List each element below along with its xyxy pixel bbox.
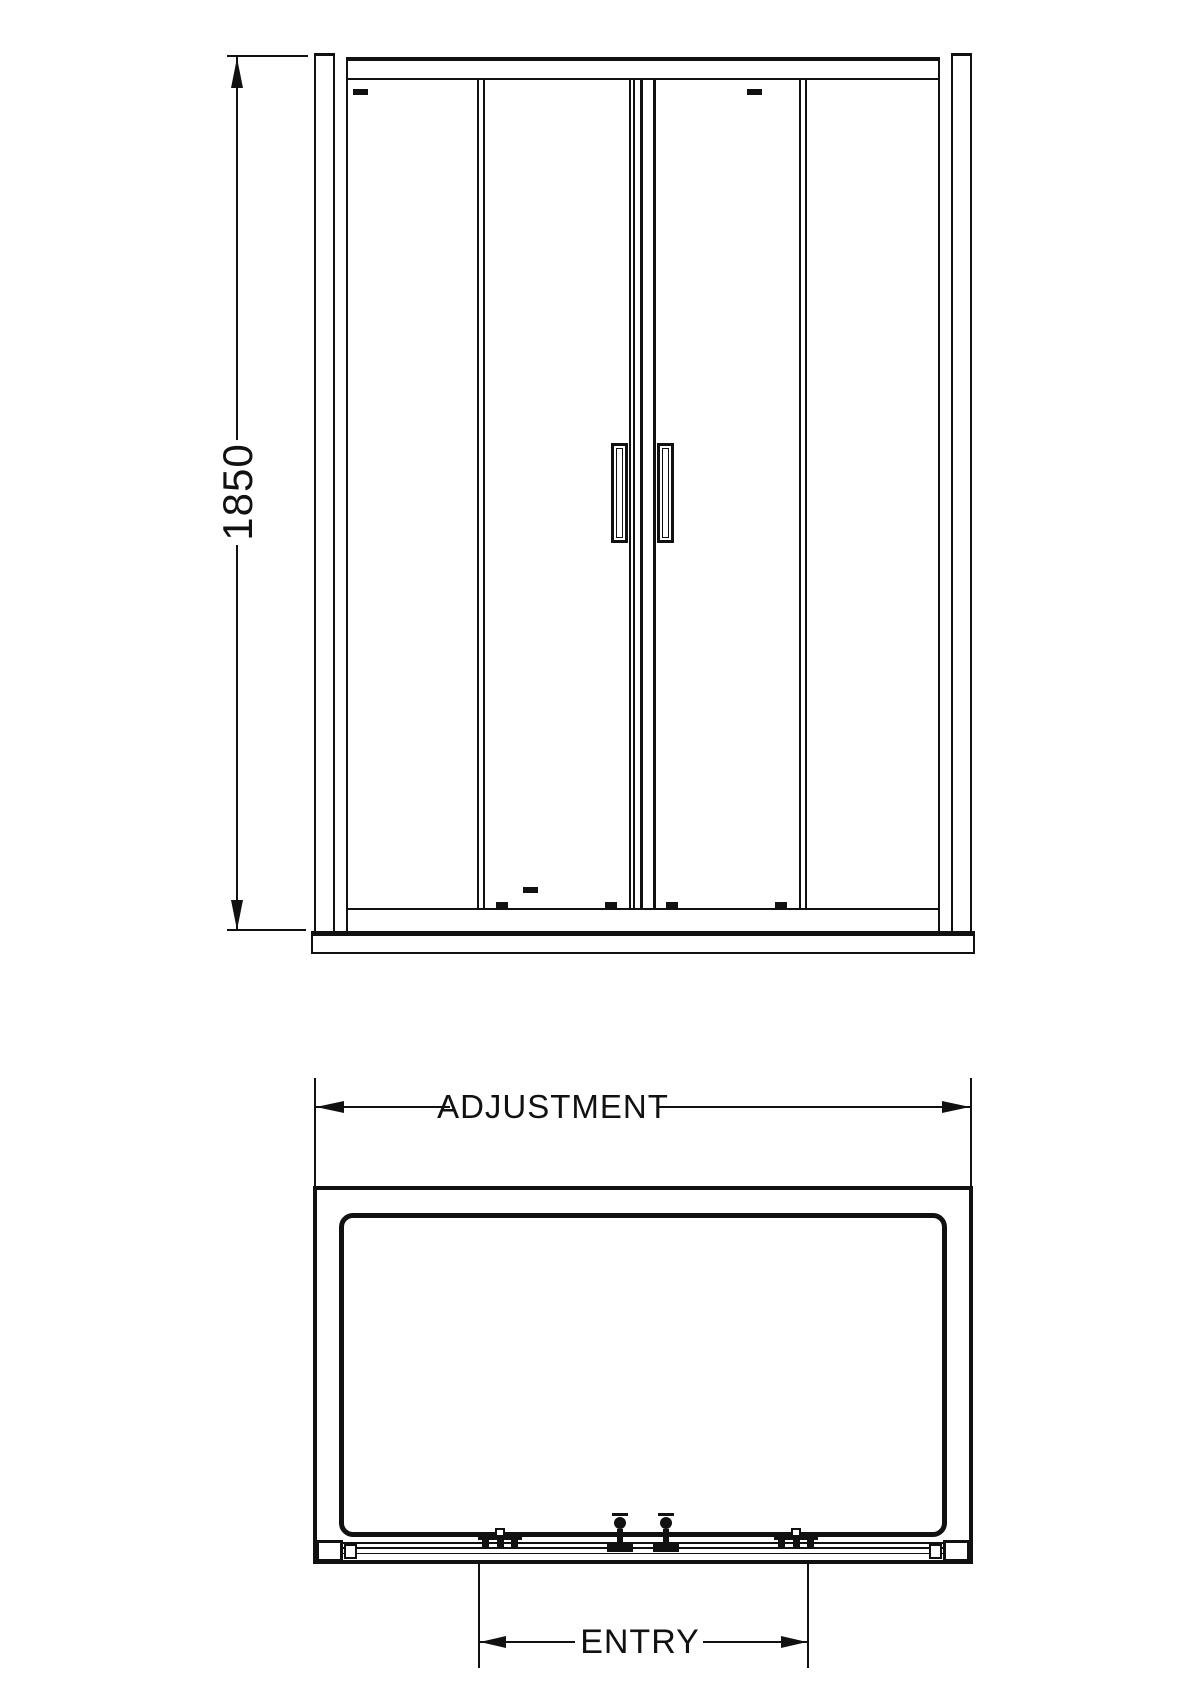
entry-ext-line-right: [807, 1560, 809, 1668]
adjustment-arrow-left: [316, 1101, 344, 1113]
track-line-3: [322, 1553, 964, 1554]
right-roller-tooth-3: [807, 1540, 814, 1549]
adjustment-ext-line-right: [970, 1078, 972, 1186]
right-guide-knob: [660, 1517, 672, 1529]
adjustment-dim-line-right: [657, 1106, 970, 1108]
right-roller-tooth-1: [778, 1540, 785, 1549]
left-guide-base: [607, 1544, 633, 1552]
adjustment-arrow-right: [942, 1101, 970, 1113]
track-line-1: [322, 1542, 964, 1544]
track-end-block-left: [316, 1540, 343, 1562]
track-end-cap-right: [929, 1544, 942, 1559]
adjustment-dim-label: ADJUSTMENT: [403, 1084, 703, 1130]
plan-inner-tray-edge: [339, 1213, 947, 1537]
drawing-sheet: 1850: [0, 0, 1200, 1698]
left-guide-knob: [614, 1517, 626, 1529]
left-roller-tooth-3: [511, 1540, 518, 1549]
left-roller-tooth-1: [482, 1540, 489, 1549]
right-guide-base: [653, 1544, 679, 1552]
entry-arrow-left: [480, 1636, 506, 1648]
left-guide-cap: [612, 1513, 628, 1516]
adjustment-ext-line-left: [314, 1078, 316, 1186]
track-end-block-right: [943, 1540, 970, 1562]
plan-view: ADJUSTMENT: [0, 0, 1200, 1698]
left-roller-tooth-2: [497, 1540, 504, 1549]
track-end-cap-left: [344, 1544, 357, 1559]
right-guide-cap: [658, 1513, 674, 1516]
entry-ext-line-left: [478, 1560, 480, 1668]
right-guide-stem: [663, 1529, 669, 1545]
track-line-2: [322, 1547, 964, 1549]
right-roller-tooth-2: [793, 1540, 800, 1549]
entry-dim-label: ENTRY: [560, 1619, 720, 1665]
entry-arrow-right: [781, 1636, 807, 1648]
left-guide-stem: [617, 1529, 623, 1545]
